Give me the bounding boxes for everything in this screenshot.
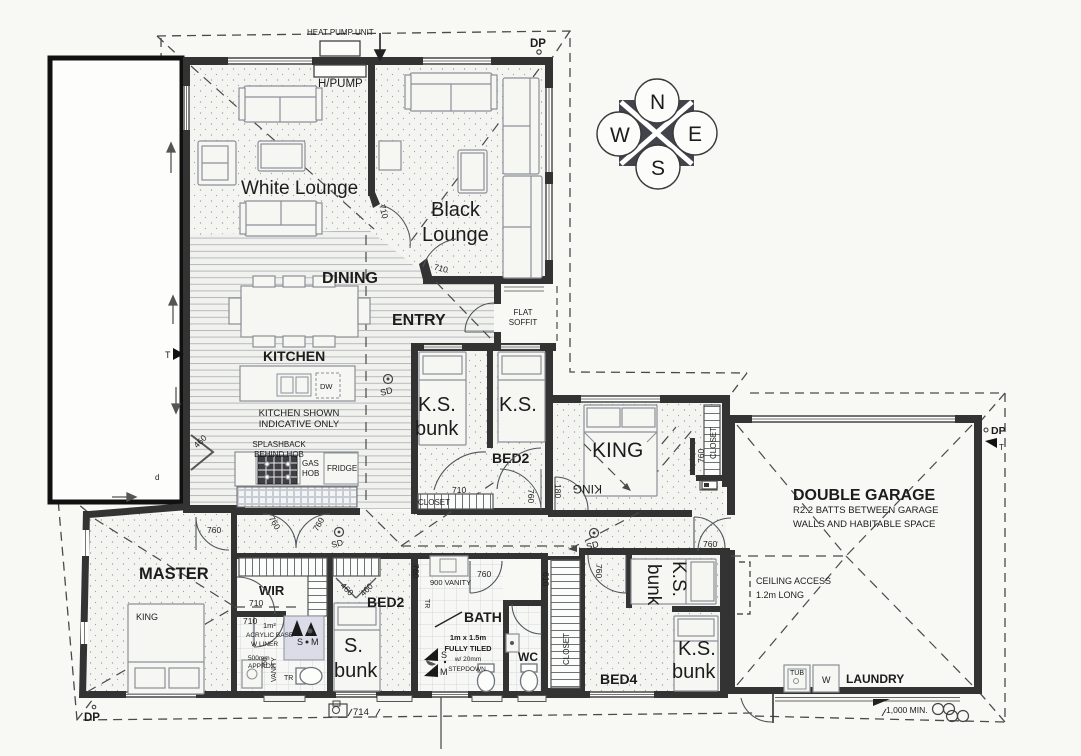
svg-text:BED2: BED2: [492, 450, 530, 466]
svg-text:GAS: GAS: [302, 459, 319, 468]
svg-text:760: 760: [477, 569, 491, 579]
svg-text:STEPDOWN: STEPDOWN: [448, 666, 486, 673]
svg-text:WALLS AND HABITABLE SPACE: WALLS AND HABITABLE SPACE: [793, 519, 935, 530]
svg-text:KITCHEN: KITCHEN: [263, 348, 325, 364]
svg-text:LAUNDRY: LAUNDRY: [846, 672, 904, 686]
svg-text:CLOSET: CLOSET: [709, 427, 718, 459]
svg-text:SOFFIT: SOFFIT: [509, 318, 538, 327]
svg-text:710: 710: [249, 598, 263, 608]
svg-text:W LINER: W LINER: [251, 641, 278, 648]
svg-text:MASTER: MASTER: [139, 565, 209, 583]
svg-text:bunk: bunk: [672, 661, 716, 683]
svg-text:TUB: TUB: [790, 670, 804, 677]
svg-text:610: 610: [541, 572, 551, 586]
svg-text:760: 760: [703, 539, 717, 549]
svg-text:HEAT PUMP UNIT: HEAT PUMP UNIT: [307, 28, 374, 37]
svg-text:FRIDGE: FRIDGE: [327, 464, 357, 473]
svg-text:K.S.: K.S.: [668, 561, 689, 597]
svg-text:DP: DP: [84, 712, 100, 724]
svg-text:DOUBLE GARAGE: DOUBLE GARAGE: [793, 487, 936, 504]
svg-text:K.S.: K.S.: [418, 394, 456, 416]
svg-text:760: 760: [207, 525, 221, 535]
svg-text:WC: WC: [518, 650, 538, 664]
svg-text:760: 760: [696, 449, 706, 463]
svg-text:M: M: [440, 667, 448, 677]
svg-text:K.S.: K.S.: [499, 394, 537, 416]
svg-text:Black: Black: [431, 199, 481, 221]
svg-text:S: S: [441, 650, 447, 660]
svg-text:KITCHEN SHOWN: KITCHEN SHOWN: [259, 408, 340, 419]
svg-text:HOB: HOB: [302, 469, 319, 478]
svg-text:W: W: [610, 124, 630, 147]
svg-text:bunk: bunk: [415, 418, 459, 440]
svg-text:BED2: BED2: [367, 594, 405, 610]
svg-text:CEILING ACCESS: CEILING ACCESS: [756, 576, 831, 586]
svg-text:E: E: [688, 123, 702, 146]
svg-text:K.S.: K.S.: [678, 638, 716, 660]
svg-text:DINING: DINING: [322, 270, 378, 287]
svg-text:Lounge: Lounge: [422, 224, 489, 246]
svg-text:M: M: [311, 637, 319, 647]
svg-text:FULLY TILED: FULLY TILED: [444, 644, 492, 653]
svg-text:1m²: 1m²: [263, 621, 276, 630]
svg-text:760: 760: [411, 564, 421, 578]
svg-text:BATH: BATH: [464, 609, 502, 625]
svg-text:S: S: [651, 157, 665, 180]
svg-text:710: 710: [243, 616, 257, 626]
svg-text:T: T: [999, 443, 1004, 452]
svg-text:900 VANITY: 900 VANITY: [430, 578, 471, 587]
svg-text:ACRYLIC BASE: ACRYLIC BASE: [246, 632, 294, 639]
svg-text:180: 180: [553, 484, 563, 498]
svg-text:S: S: [297, 637, 303, 647]
svg-text:N: N: [650, 91, 665, 114]
svg-text:White Lounge: White Lounge: [241, 178, 358, 199]
svg-text:760: 760: [526, 489, 536, 503]
svg-text:CLOSET: CLOSET: [562, 633, 571, 665]
svg-text:FLAT: FLAT: [514, 308, 533, 317]
svg-text:DW: DW: [320, 382, 333, 391]
svg-text:TR: TR: [423, 599, 430, 608]
svg-text:TR: TR: [284, 675, 293, 682]
svg-text:KING: KING: [592, 439, 643, 462]
svg-text:KING: KING: [136, 612, 158, 622]
svg-text:SPLASHBACK: SPLASHBACK: [252, 440, 306, 449]
svg-text:T: T: [165, 350, 171, 360]
svg-text:DP: DP: [530, 38, 546, 50]
svg-text:bunk: bunk: [334, 660, 378, 682]
svg-text:1.2m LONG: 1.2m LONG: [756, 590, 804, 600]
svg-text:710: 710: [452, 485, 466, 495]
svg-text:bunk: bunk: [643, 564, 664, 606]
svg-text:1m x 1.5m: 1m x 1.5m: [450, 633, 487, 642]
svg-text:DP: DP: [991, 425, 1006, 437]
svg-text:VANITY: VANITY: [271, 657, 278, 682]
svg-text:BED4: BED4: [600, 671, 638, 687]
svg-text:d: d: [155, 473, 159, 482]
svg-text:S.: S.: [344, 635, 363, 657]
svg-text:714: 714: [353, 707, 369, 718]
svg-text:CLOSET: CLOSET: [418, 498, 450, 507]
svg-text:H/PUMP: H/PUMP: [318, 78, 363, 90]
svg-text:760: 760: [594, 564, 604, 578]
svg-text:WIR: WIR: [259, 583, 285, 598]
svg-text:KING: KING: [573, 482, 602, 496]
svg-text:INDICATIVE ONLY: INDICATIVE ONLY: [259, 419, 340, 430]
svg-text:ENTRY: ENTRY: [392, 312, 446, 329]
svg-text:w/ 20mm: w/ 20mm: [454, 656, 481, 663]
svg-text:R2.2 BATTS BETWEEN GARAGE: R2.2 BATTS BETWEEN GARAGE: [793, 505, 939, 516]
svg-text:W: W: [822, 675, 831, 685]
svg-text:1,000 MIN.: 1,000 MIN.: [886, 705, 928, 715]
svg-text:750: 750: [262, 657, 269, 669]
svg-text:BEHIND HOB: BEHIND HOB: [254, 450, 304, 459]
